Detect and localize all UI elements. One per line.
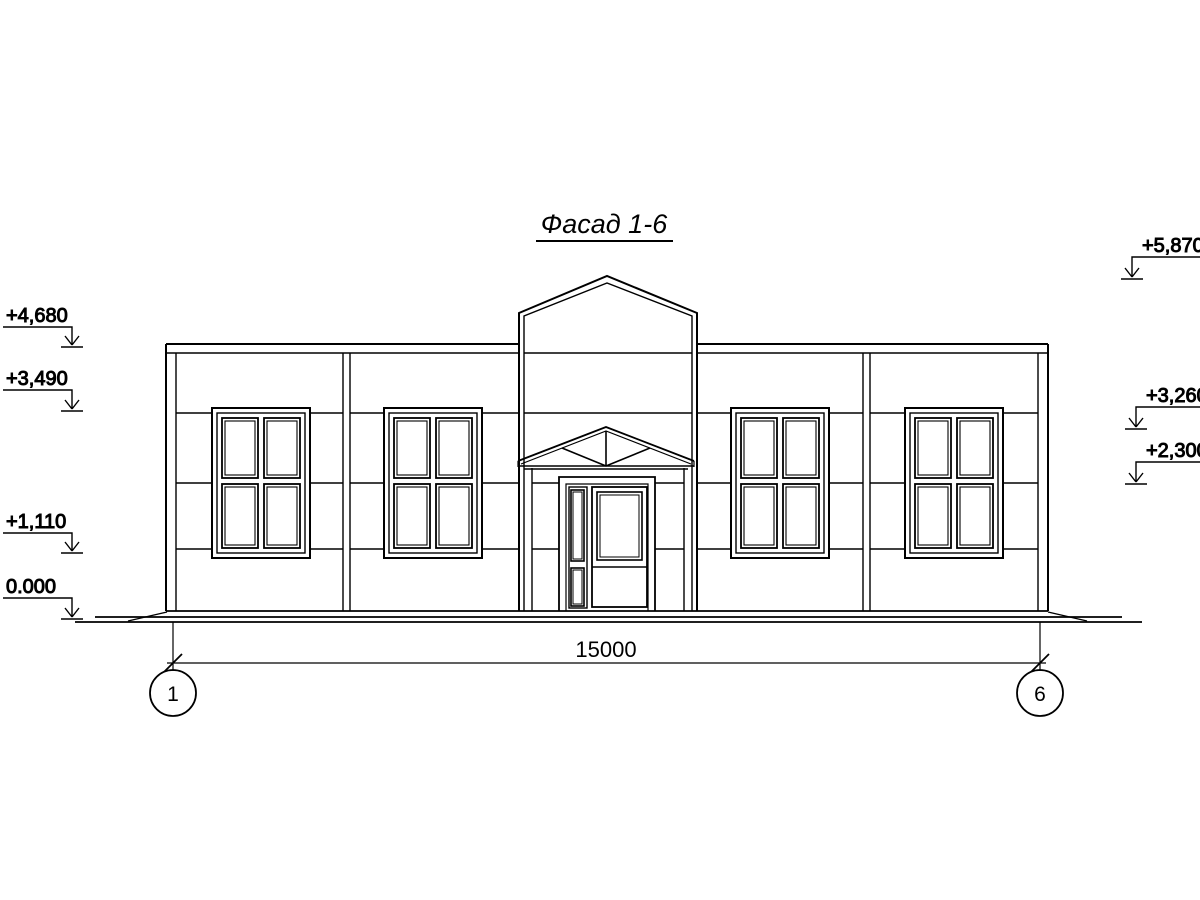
elevation-label: +2,300 — [1146, 440, 1200, 462]
elevation-mark-3260: +3,260 — [1125, 385, 1200, 429]
door-sidelight-upper-pane-inner — [573, 492, 582, 559]
drawing-title: Фасад 1-6 — [541, 209, 668, 239]
elevation-mark-4680: +4,680 — [3, 305, 83, 347]
facade-drawing: 15000 1 6 +4,680 +3,490 +1,110 0.000 +5 — [0, 0, 1200, 900]
elevation-leader — [3, 533, 83, 553]
elevation-label: +3,260 — [1146, 385, 1200, 407]
door-leaf-glass-inner — [600, 495, 639, 557]
panel-joint-left — [343, 353, 350, 611]
elevation-label: +1,110 — [6, 511, 66, 533]
elevation-leader — [1121, 257, 1200, 279]
elevation-mark-2300: +2,300 — [1125, 440, 1200, 484]
elevation-leader — [1125, 407, 1200, 429]
ground-lines — [75, 611, 1142, 622]
elevation-label: +5,870 — [1142, 235, 1200, 257]
elevation-mark-0000: 0.000 — [3, 576, 83, 619]
window-1 — [212, 408, 310, 558]
portico-bottom-chord — [518, 466, 694, 469]
elevation-mark-5870: +5,870 — [1121, 235, 1200, 279]
portico-posts — [532, 468, 684, 611]
elevation-label: +4,680 — [6, 305, 68, 327]
elevation-leader — [3, 598, 83, 619]
axis-marker-1: 1 — [150, 670, 196, 716]
entrance-door — [559, 477, 655, 611]
elevation-label: +3,490 — [6, 368, 68, 390]
axis-number-right: 6 — [1034, 683, 1046, 706]
panel-joints — [343, 353, 870, 611]
elevation-marks-right: +5,870 +3,260 +2,300 — [1121, 235, 1200, 484]
door-architrave-inner — [566, 484, 648, 611]
axis-marker-6: 6 — [1017, 670, 1063, 716]
door-sidelight-lower-pane-inner — [573, 570, 582, 604]
dimension-value: 15000 — [575, 637, 636, 662]
elevation-label: 0.000 — [6, 576, 56, 598]
elevation-mark-3490: +3,490 — [3, 368, 83, 411]
elevation-leader — [1125, 462, 1200, 484]
panel-joint-right — [863, 353, 870, 611]
elevation-marks-left: +4,680 +3,490 +1,110 0.000 — [3, 305, 83, 619]
axis-number-left: 1 — [167, 683, 179, 706]
elevation-leader — [3, 390, 83, 411]
tower-outline-inner — [524, 283, 692, 611]
elevation-mark-1110: +1,110 — [3, 511, 83, 553]
window-3 — [731, 408, 829, 558]
door-leaf-glass — [597, 492, 642, 560]
elevation-leader — [3, 327, 83, 347]
drawing-sheet: 15000 1 6 +4,680 +3,490 +1,110 0.000 +5 — [0, 0, 1200, 900]
window-4 — [905, 408, 1003, 558]
portico-roof — [518, 427, 694, 611]
fascia-band — [166, 344, 1048, 353]
window-2 — [384, 408, 482, 558]
